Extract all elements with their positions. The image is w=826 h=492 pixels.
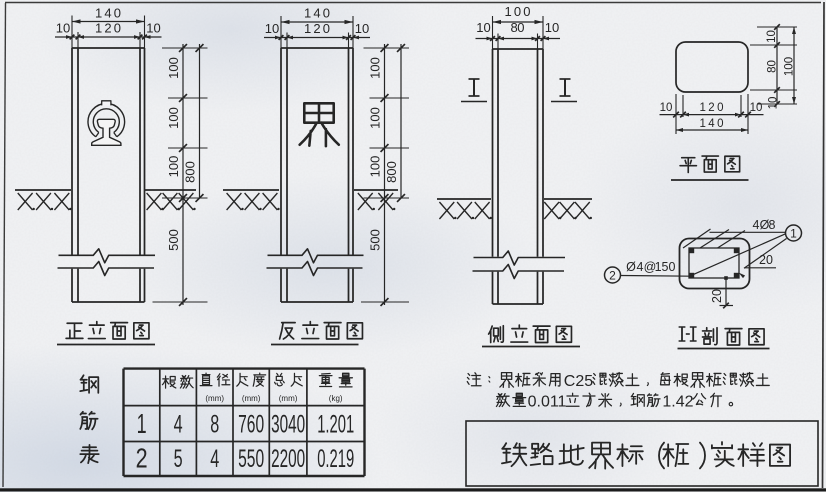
svg-text:10: 10 xyxy=(545,20,559,35)
svg-text:10: 10 xyxy=(476,20,490,35)
svg-text:120: 120 xyxy=(95,21,121,36)
svg-text:(kg): (kg) xyxy=(329,394,343,403)
svg-text:20: 20 xyxy=(759,253,773,267)
svg-text:100: 100 xyxy=(368,156,383,178)
svg-text:(mm): (mm) xyxy=(205,394,224,403)
svg-text:10: 10 xyxy=(265,21,279,36)
svg-text:10: 10 xyxy=(766,30,778,43)
svg-text:Ø: Ø xyxy=(626,260,636,274)
svg-text:150: 150 xyxy=(655,260,676,274)
svg-text:10: 10 xyxy=(355,21,369,36)
svg-text:8: 8 xyxy=(769,218,776,232)
svg-text:10: 10 xyxy=(750,102,763,114)
svg-text:0.219: 0.219 xyxy=(317,445,354,473)
svg-text:4: 4 xyxy=(174,411,183,439)
svg-text:3040: 3040 xyxy=(271,411,305,439)
svg-text:2: 2 xyxy=(136,443,148,474)
svg-text:5: 5 xyxy=(174,445,183,473)
svg-text:100: 100 xyxy=(368,107,383,129)
svg-text:550: 550 xyxy=(238,445,264,473)
svg-text:80: 80 xyxy=(511,20,525,35)
svg-text:20: 20 xyxy=(710,289,724,303)
svg-text:10: 10 xyxy=(146,21,160,36)
svg-text:100: 100 xyxy=(368,57,383,79)
svg-text:10: 10 xyxy=(660,102,673,114)
svg-text:8: 8 xyxy=(210,411,219,439)
svg-text:2200: 2200 xyxy=(271,445,305,473)
svg-text:100: 100 xyxy=(166,107,181,129)
svg-text:4: 4 xyxy=(637,260,644,274)
svg-text:120: 120 xyxy=(700,102,724,114)
svg-text:100: 100 xyxy=(784,57,796,76)
svg-text:500: 500 xyxy=(368,229,383,251)
svg-text:100: 100 xyxy=(505,4,531,19)
svg-text:0.011: 0.011 xyxy=(528,394,567,411)
svg-text:800: 800 xyxy=(384,161,399,183)
svg-text:C25: C25 xyxy=(564,373,593,390)
svg-text:760: 760 xyxy=(238,411,264,439)
svg-text:140: 140 xyxy=(700,118,724,130)
svg-text:1.201: 1.201 xyxy=(317,411,354,439)
svg-text:4: 4 xyxy=(210,445,219,473)
svg-text:4: 4 xyxy=(753,218,760,232)
svg-text:1.42: 1.42 xyxy=(662,394,693,411)
svg-text:500: 500 xyxy=(166,229,181,251)
svg-text:80: 80 xyxy=(767,60,779,73)
svg-text:10: 10 xyxy=(56,21,70,36)
svg-text:140: 140 xyxy=(304,6,330,21)
svg-text:1: 1 xyxy=(790,226,797,240)
svg-text:1: 1 xyxy=(137,408,147,439)
svg-text:(mm): (mm) xyxy=(279,394,298,403)
svg-text:140: 140 xyxy=(95,6,121,21)
svg-text:120: 120 xyxy=(304,21,330,36)
svg-text:(mm): (mm) xyxy=(242,394,261,403)
svg-text:2: 2 xyxy=(609,268,616,282)
svg-text:800: 800 xyxy=(183,161,198,183)
svg-text:100: 100 xyxy=(166,156,181,178)
svg-text:100: 100 xyxy=(166,57,181,79)
svg-text:10: 10 xyxy=(768,97,780,110)
